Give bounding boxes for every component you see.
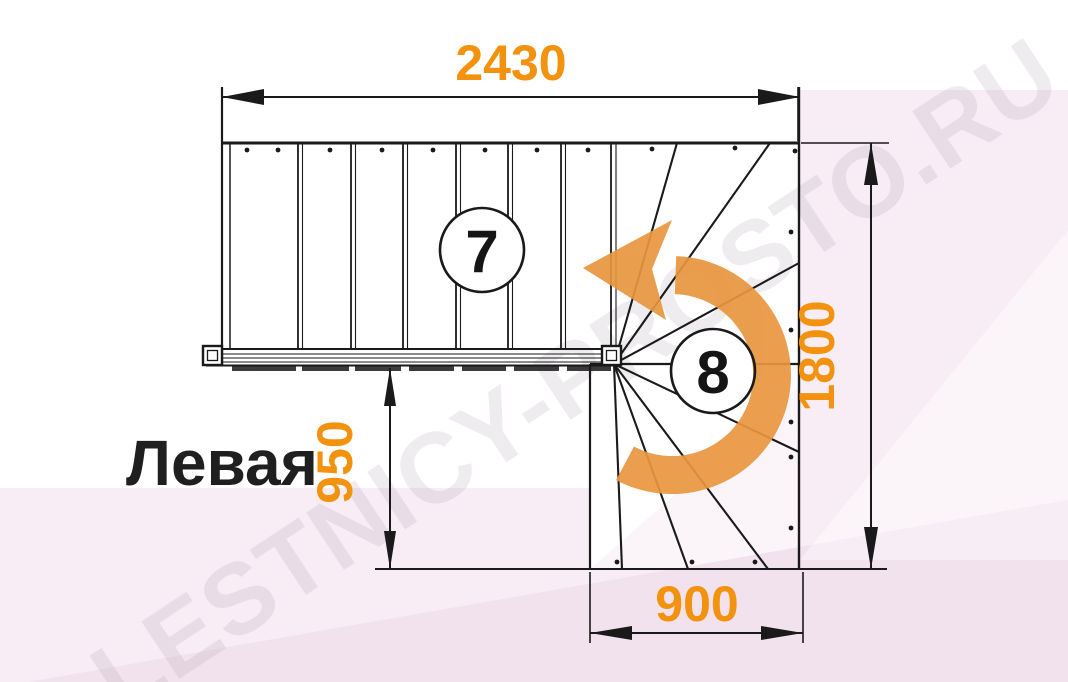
dimension-bottom-width-label: 900 — [655, 576, 738, 632]
flight-step-count: 7 — [465, 218, 498, 285]
flight-step-count-badge: 7 — [440, 208, 524, 292]
staircase-plan-page: LESTNICY-PROSTO.RU — [0, 0, 1068, 682]
handrail-band — [203, 346, 621, 371]
step-nosing-strip — [232, 367, 611, 372]
plan-orientation-label: Левая — [126, 427, 318, 499]
dimension-right-height-label: 1800 — [789, 300, 845, 411]
staircase-plan-canvas: LESTNICY-PROSTO.RU — [0, 0, 1068, 682]
winder-step-count: 8 — [696, 339, 729, 406]
dimension-top-width-label: 2430 — [455, 35, 566, 91]
background-watermark-shapes: LESTNICY-PROSTO.RU — [0, 0, 1068, 682]
